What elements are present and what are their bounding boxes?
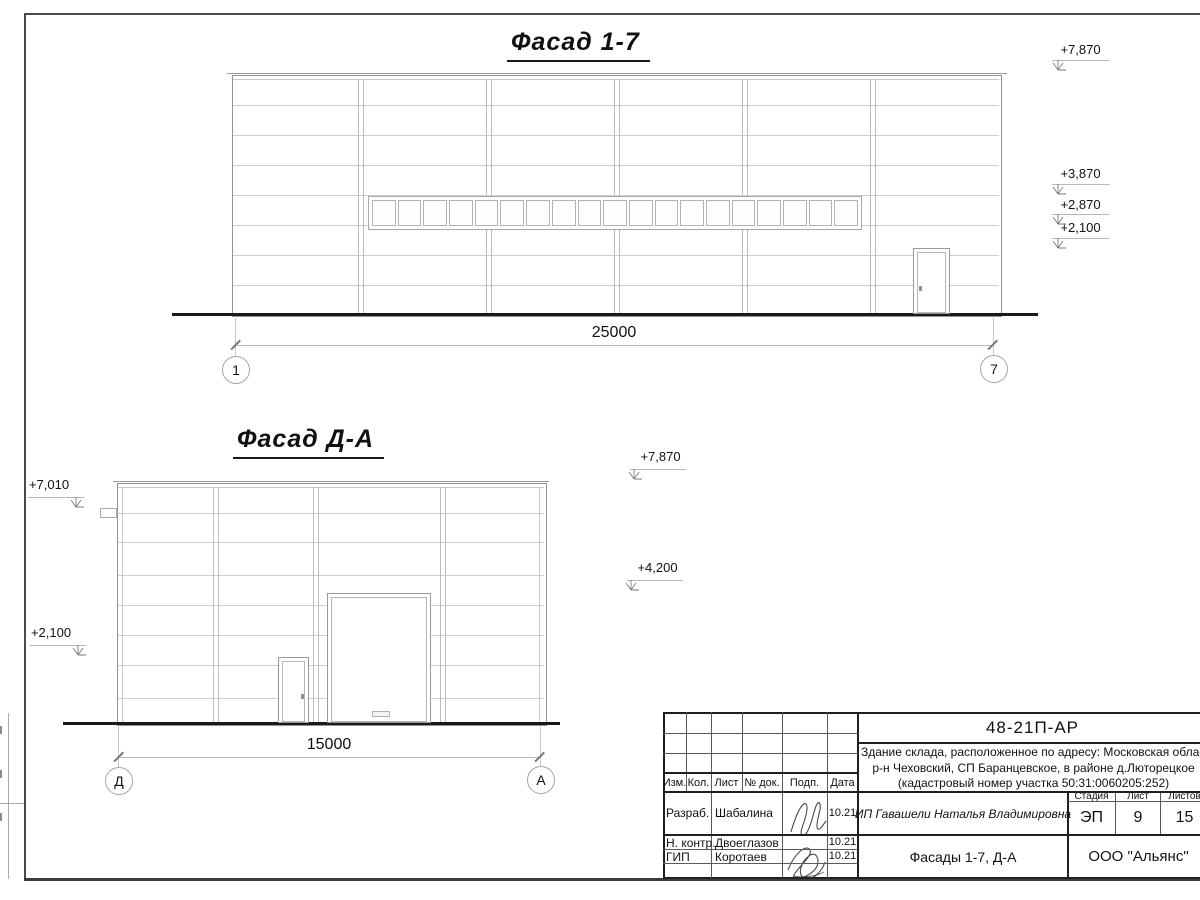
project-description: Здание склада, расположенное по адресу: … xyxy=(861,745,1200,792)
col-header-kol: Кол. xyxy=(686,774,711,791)
sheets-total-value: 15 xyxy=(1161,802,1200,834)
signer-name: Шабалина xyxy=(715,805,780,820)
ground-line xyxy=(172,313,1038,316)
window-pane xyxy=(398,200,422,226)
elevation-tick-icon xyxy=(1050,214,1066,227)
window-pane xyxy=(655,200,679,226)
panel-joint-line xyxy=(118,542,544,543)
panel-joint-line xyxy=(118,513,544,514)
doc-number: 48-21П-АР xyxy=(860,714,1200,741)
elevation-tick-icon xyxy=(68,497,84,510)
margin-text-cutoff xyxy=(0,770,2,778)
window-pane xyxy=(680,200,704,226)
tb-grid xyxy=(782,712,783,878)
drawing-title: Фасады 1-7, Д-А xyxy=(858,836,1068,877)
elevation-tick-icon xyxy=(626,469,642,482)
door xyxy=(278,657,309,723)
sheet-label: Лист xyxy=(1116,791,1160,802)
stage-value: ЭП xyxy=(1068,802,1115,834)
tb-grid xyxy=(711,712,712,878)
elevation-label: +2,870 xyxy=(1052,197,1109,212)
window-pane xyxy=(809,200,833,226)
elevation-tick-icon xyxy=(1050,238,1066,251)
company-name: ООО "Альянс" xyxy=(1069,836,1200,877)
gutter-outlet xyxy=(100,508,117,518)
elevation-label: +7,870 xyxy=(632,449,689,464)
signer-role: ГИП xyxy=(666,850,710,863)
window-pane xyxy=(706,200,730,226)
column-flange-line xyxy=(122,487,123,723)
elevation-label: +7,010 xyxy=(24,477,74,492)
gate-lock xyxy=(372,711,390,717)
tb-grid xyxy=(663,753,858,754)
window-pane xyxy=(603,200,627,226)
window-pane xyxy=(500,200,524,226)
axis-marker-d: Д xyxy=(105,767,133,795)
elevation-tick-icon xyxy=(623,580,639,593)
elevation-tick-icon xyxy=(1050,60,1066,73)
elevation-label: +2,100 xyxy=(26,625,76,640)
tb-grid xyxy=(663,733,858,734)
window-pane xyxy=(629,200,653,226)
door-handle-icon xyxy=(919,286,922,291)
window-strip xyxy=(368,196,862,230)
panel-joint-line xyxy=(118,575,544,576)
drawing-sheet: Фасад 1-7 +7,870 +3,870 +2,870 +2,100 25… xyxy=(0,0,1200,900)
column-mullion xyxy=(440,487,446,723)
column-flange-line xyxy=(539,487,540,723)
facade-1-7-title: Фасад 1-7 xyxy=(507,28,650,62)
margin-line xyxy=(8,713,9,879)
column-mullion xyxy=(213,487,219,723)
parapet-cap-line xyxy=(227,73,1007,74)
axis-marker-1: 1 xyxy=(222,356,250,384)
project-description-line: р-н Чеховский, СП Баранцевское, в районе… xyxy=(861,761,1200,777)
ground-line xyxy=(63,722,560,725)
column-mullion xyxy=(870,79,876,313)
elevation-tick-icon xyxy=(1050,184,1066,197)
window-pane xyxy=(526,200,550,226)
door-handle-icon xyxy=(301,694,304,699)
signer-name: Двоеглазов xyxy=(715,836,782,849)
sheet-frame-left xyxy=(24,13,26,881)
sheets-total-label: Листов xyxy=(1161,791,1200,802)
door xyxy=(913,248,950,314)
col-header-data: Дата xyxy=(827,774,858,791)
facade-d-a-title: Фасад Д-А xyxy=(233,425,384,459)
dimension-25000: 25000 xyxy=(235,324,993,342)
elevation-label: +7,870 xyxy=(1052,42,1109,57)
dimension-15000: 15000 xyxy=(118,736,540,754)
signer-name: Коротаев xyxy=(715,850,780,863)
col-header-podp: Подп. xyxy=(782,774,827,791)
window-pane xyxy=(732,200,756,226)
parapet-cap-line xyxy=(113,481,549,482)
signer-role: Н. контр. xyxy=(666,836,716,849)
gate-leaf xyxy=(331,597,427,722)
window-pane xyxy=(834,200,858,226)
door-leaf xyxy=(282,661,305,722)
margin-text-cutoff xyxy=(0,726,2,734)
door-leaf xyxy=(917,252,946,313)
panel-joint-line xyxy=(118,487,544,488)
elevation-label: +3,870 xyxy=(1052,166,1109,181)
signer-date: 10.21 xyxy=(827,849,858,862)
col-header-izm: Изм. xyxy=(663,774,686,791)
sheet-frame-top xyxy=(24,13,1200,15)
stage-label: Стадия xyxy=(1068,791,1115,802)
margin-text-cutoff xyxy=(0,813,2,821)
window-pane xyxy=(475,200,499,226)
project-description-line: (кадастровый номер участка 50:31:0060205… xyxy=(861,776,1200,792)
gate xyxy=(327,593,431,723)
window-pane xyxy=(578,200,602,226)
column-mullion xyxy=(358,79,364,313)
extension-line xyxy=(540,727,541,767)
signature xyxy=(783,834,829,880)
signer-date: 10.21 xyxy=(827,805,858,820)
dimension-line xyxy=(235,345,993,346)
column-mullion xyxy=(313,487,319,723)
margin-divider xyxy=(0,803,24,804)
signer-date: 10.21 xyxy=(827,835,858,848)
sheet-value: 9 xyxy=(1116,802,1160,834)
window-pane xyxy=(423,200,447,226)
signer-role: Разраб. xyxy=(666,805,710,820)
axis-marker-a: А xyxy=(527,766,555,794)
axis-marker-7: 7 xyxy=(980,355,1008,383)
window-pane xyxy=(757,200,781,226)
tb-grid xyxy=(858,742,1200,744)
extension-line xyxy=(993,318,994,356)
window-pane xyxy=(449,200,473,226)
elevation-tick-icon xyxy=(70,645,86,658)
window-pane xyxy=(552,200,576,226)
window-pane xyxy=(372,200,396,226)
elevation-label: +4,200 xyxy=(629,560,686,575)
dimension-line xyxy=(118,757,540,758)
project-description-line: Здание склада, расположенное по адресу: … xyxy=(861,745,1200,761)
client-name: ИП Гавашели Наталья Владимировна xyxy=(858,792,1068,835)
col-header-list: Лист xyxy=(711,774,742,791)
window-pane xyxy=(783,200,807,226)
col-header-ndok: № док. xyxy=(742,774,782,791)
